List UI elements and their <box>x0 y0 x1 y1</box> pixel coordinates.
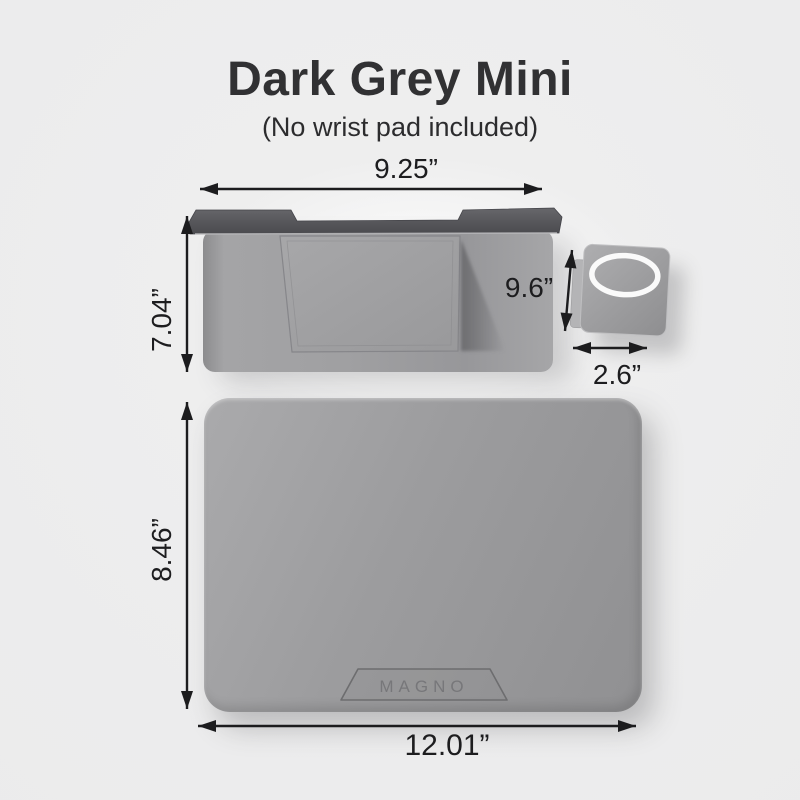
desk-pad <box>204 398 642 712</box>
phone-stand-length-label: 9.6” <box>505 272 553 304</box>
magno-logo: MAGNO <box>379 677 468 697</box>
laptop-stand-shadow <box>203 232 553 372</box>
page-title: Dark Grey Mini <box>0 52 800 107</box>
phone-stand-width-label: 2.6” <box>593 359 641 391</box>
pad-depth-label: 8.46” <box>146 518 178 582</box>
page-subtitle: (No wrist pad included) <box>0 112 800 143</box>
pad-width-label: 12.01” <box>404 729 489 763</box>
phone-stand-shadow <box>580 244 670 336</box>
stand-width-label: 9.25” <box>374 153 438 185</box>
stand-depth-label: 7.04” <box>146 288 178 352</box>
